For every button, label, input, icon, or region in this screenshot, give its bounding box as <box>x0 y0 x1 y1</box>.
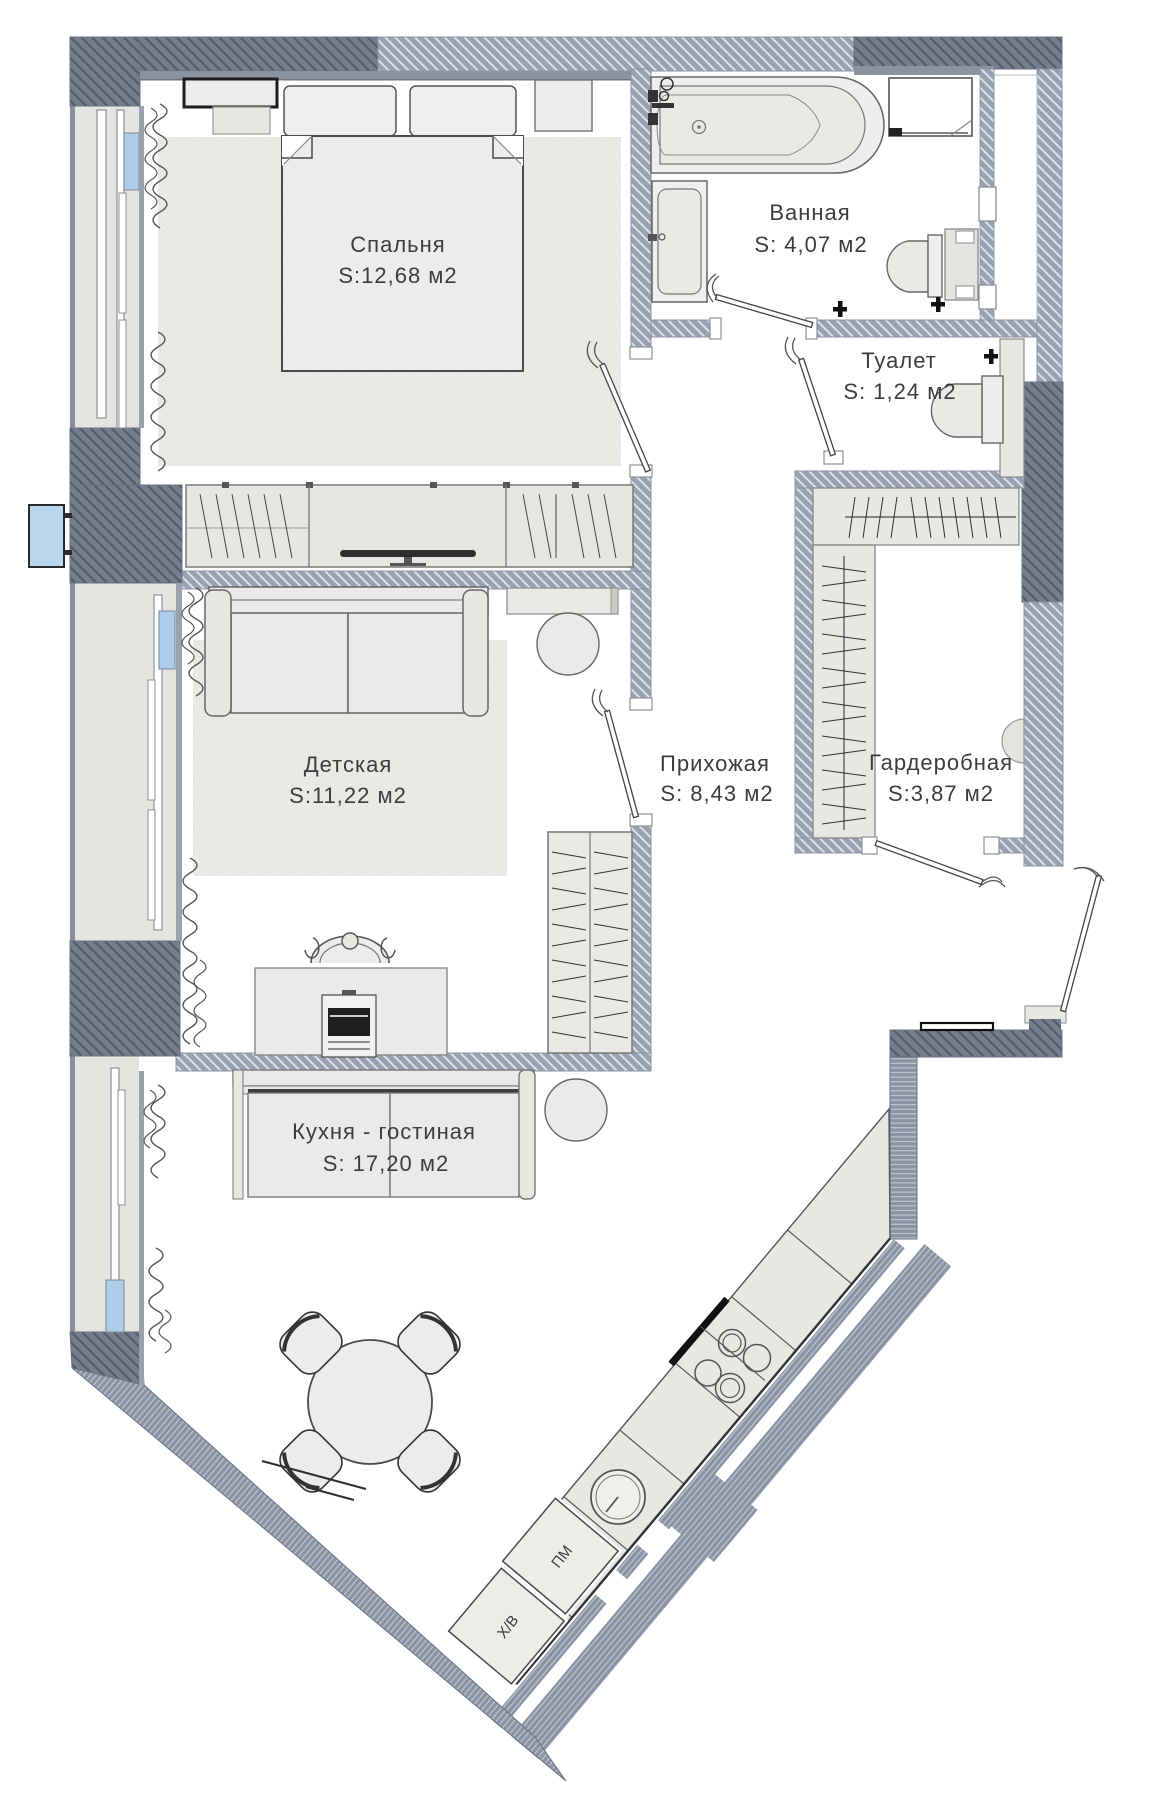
svg-text:S: 1,24 м2: S: 1,24 м2 <box>843 379 956 404</box>
svg-text:Ванная: Ванная <box>769 200 850 225</box>
svg-text:S: 4,07 м2: S: 4,07 м2 <box>754 232 867 257</box>
svg-text:S:11,22 м2: S:11,22 м2 <box>289 783 407 808</box>
svg-text:S:12,68 м2: S:12,68 м2 <box>338 263 457 288</box>
svg-text:Спальня: Спальня <box>350 232 445 257</box>
svg-text:S:3,87 м2: S:3,87 м2 <box>888 781 994 806</box>
svg-text:S: 17,20 м2: S: 17,20 м2 <box>323 1151 449 1176</box>
svg-text:Туалет: Туалет <box>861 348 937 373</box>
svg-text:Кухня - гостиная: Кухня - гостиная <box>292 1119 476 1144</box>
svg-text:Гардеробная: Гардеробная <box>869 750 1013 775</box>
svg-text:S: 8,43 м2: S: 8,43 м2 <box>660 781 773 806</box>
svg-text:Прихожая: Прихожая <box>660 751 770 776</box>
svg-text:Детская: Детская <box>304 752 393 777</box>
